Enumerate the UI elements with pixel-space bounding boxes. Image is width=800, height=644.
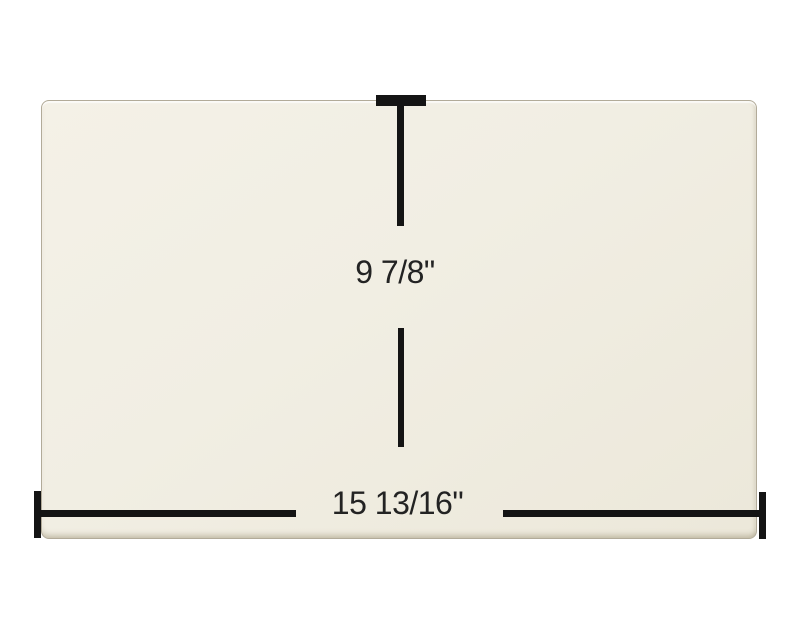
width-dimension-right-cap [759,492,766,539]
height-dimension-top-tick [376,95,426,106]
width-dimension-left-line [38,510,296,517]
height-dimension-upper-line [397,106,404,226]
height-dimension-lower-line [398,328,404,447]
diagram-canvas: 9 7/8" 15 13/16" [0,0,800,644]
height-dimension-label: 9 7/8" [310,254,480,291]
width-dimension-label: 15 13/16" [315,485,480,522]
width-dimension-right-line [503,510,762,517]
